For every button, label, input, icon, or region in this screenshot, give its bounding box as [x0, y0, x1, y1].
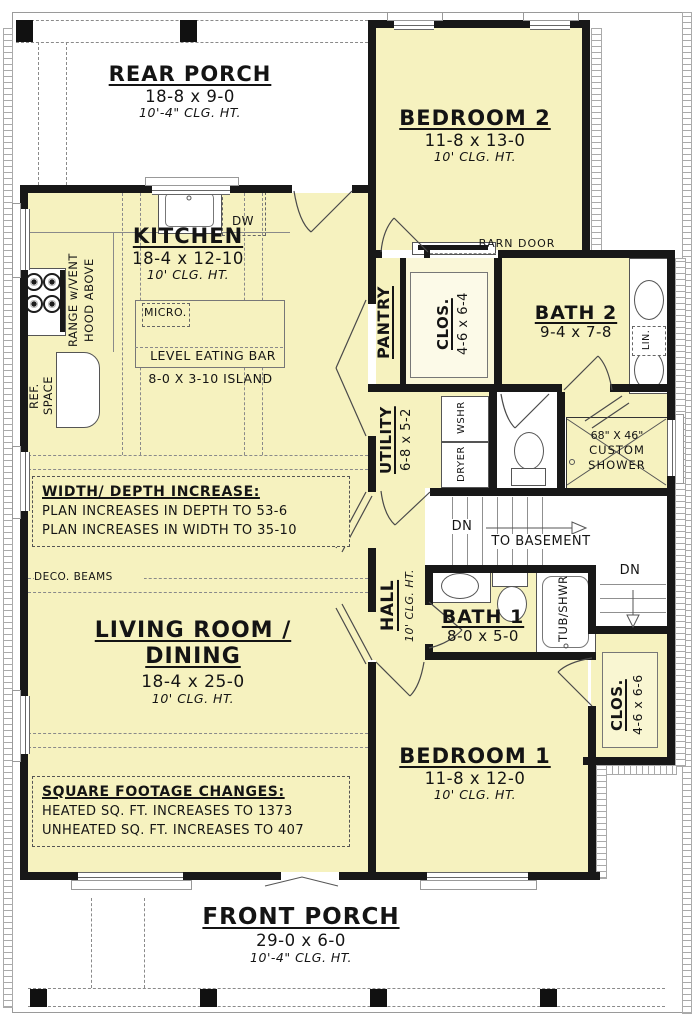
room-dims: 18-4 x 25-0	[70, 672, 316, 692]
room-name: BATH 1	[428, 606, 538, 628]
tub-shower-label: TUB/SHWR	[556, 582, 574, 642]
sink-faucet	[187, 196, 191, 200]
room-ceiling: 10' CLG. HT.	[372, 150, 578, 165]
room-name: REAR PORCH	[40, 62, 340, 87]
washer-label: WSHR	[456, 399, 472, 437]
bath2-label: BATH 2 9-4 x 7-8	[503, 302, 649, 342]
door-leaf	[558, 672, 592, 706]
closet-bottom-name: CLOS.	[608, 662, 630, 748]
microwave-label: MICRO.	[144, 306, 186, 319]
room-dims: 18-4 x 12-10	[85, 249, 291, 268]
closet-bottom-dims: 4-6 x 6-6	[630, 660, 649, 750]
room-ceiling: 10' CLG. HT.	[70, 692, 316, 707]
range-label: HOOD ABOVE	[82, 244, 97, 356]
stair-arrow-head	[572, 522, 586, 534]
stairs-dn2-label: DN	[612, 563, 648, 578]
door-arc	[558, 658, 592, 672]
ref-space-label: SPACE	[41, 364, 55, 428]
dryer-label: DRYER	[456, 445, 472, 483]
door-leaf	[564, 356, 598, 390]
note-line: UNHEATED SQ. FT. INCREASES TO 407	[42, 823, 340, 838]
room-ceiling: 10'-4" CLG. HT.	[165, 951, 437, 966]
note-line: PLAN INCREASES IN WIDTH TO 35-10	[42, 523, 340, 538]
stairs-dn-label: DN	[448, 519, 476, 534]
room-ceiling: 10' CLG. HT.	[85, 268, 291, 283]
stair-arrow-head	[627, 615, 639, 627]
shower-word: SHOWER	[570, 458, 664, 473]
note-line: HEATED SQ. FT. INCREASES TO 1373	[42, 804, 340, 819]
hall-ceiling: 10' CLG. HT.	[403, 558, 421, 652]
front-porch-label: FRONT PORCH 29-0 x 6-0 10'-4" CLG. HT.	[165, 904, 437, 965]
custom-shower-label: 68" X 46" CUSTOM SHOWER	[570, 429, 664, 473]
shower-size: 68" X 46"	[570, 429, 664, 443]
door-leaf	[394, 218, 428, 252]
room-dims: 9-4 x 7-8	[503, 324, 649, 342]
dishwasher-label: DW	[224, 214, 262, 228]
bedroom1-label: BEDROOM 1 11-8 x 12-0 10' CLG. HT.	[364, 744, 586, 803]
utility-dims: 6-8 x 5-2	[399, 394, 419, 486]
deco-beams-label: DECO. BEAMS	[34, 571, 144, 583]
front-door-mark	[265, 877, 338, 886]
door-arc	[598, 356, 612, 390]
room-dims: 18-8 x 9-0	[40, 87, 340, 106]
width-depth-note: WIDTH/ DEPTH INCREASE: PLAN INCREASES IN…	[32, 476, 350, 547]
room-dims: 29-0 x 6-0	[165, 931, 437, 950]
note-title: SQUARE FOOTAGE CHANGES:	[42, 784, 340, 800]
room-name: BEDROOM 1	[364, 744, 586, 769]
note-line: PLAN INCREASES IN DEPTH TO 53-6	[42, 504, 340, 519]
tub-faucet	[564, 644, 568, 648]
room-name: BEDROOM 2	[372, 106, 578, 131]
closet-top-dims: 4-6 x 6-4	[456, 268, 476, 380]
floor-plan: REAR PORCH 18-8 x 9-0 10'-4" CLG. HT. BE…	[0, 0, 693, 1024]
door-arc	[501, 394, 515, 428]
eating-bar-label: LEVEL EATING BAR	[148, 348, 278, 363]
utility-name: UTILITY	[377, 394, 399, 486]
to-basement-label: TO BASEMENT	[486, 534, 596, 549]
room-name: LIVING ROOM /	[70, 618, 316, 644]
room-ceiling: 10'-4" CLG. HT.	[40, 106, 340, 121]
rear-porch-label: REAR PORCH 18-8 x 9-0 10'-4" CLG. HT.	[40, 62, 340, 121]
cased-opening	[342, 604, 372, 660]
door-leaf	[311, 191, 352, 232]
kitchen-label: KITCHEN 18-4 x 12-10 10' CLG. HT.	[85, 224, 291, 283]
door-arc	[381, 491, 395, 525]
room-dims: 8-0 x 5-0	[428, 628, 538, 646]
bath1-label: BATH 1 8-0 x 5-0	[428, 606, 538, 646]
door-arc	[381, 218, 394, 252]
pantry-label: PANTRY	[374, 262, 400, 384]
bedroom2-label: BEDROOM 2 11-8 x 13-0 10' CLG. HT.	[372, 106, 578, 165]
room-dims: 11-8 x 12-0	[364, 769, 586, 788]
shower-word: CUSTOM	[570, 443, 664, 458]
room-dims: 11-8 x 13-0	[372, 131, 578, 150]
pantry-bifold	[336, 300, 366, 368]
range-label: RANGE w/VENT	[66, 244, 81, 356]
square-footage-note: SQUARE FOOTAGE CHANGES: HEATED SQ. FT. I…	[32, 776, 350, 847]
linen-label: LIN.	[641, 328, 655, 352]
room-name: DINING	[70, 644, 316, 670]
door-arc	[410, 662, 424, 696]
pantry-bifold	[336, 368, 366, 436]
living-label: LIVING ROOM / DINING 18-4 x 25-0 10' CLG…	[70, 618, 316, 707]
island-dims-label: 8-0 X 3-10 ISLAND	[138, 371, 283, 386]
shower-entry	[592, 403, 629, 428]
note-title: WIDTH/ DEPTH INCREASE:	[42, 484, 340, 500]
cased-opening	[336, 608, 366, 664]
door-leaf	[395, 492, 430, 525]
shower-entry	[585, 396, 622, 421]
room-ceiling: 10' CLG. HT.	[364, 788, 586, 803]
room-name: FRONT PORCH	[165, 904, 437, 931]
door-arc	[294, 191, 311, 232]
ref-space-label: REF.	[27, 364, 41, 428]
barn-door-label: BARN DOOR	[470, 237, 564, 250]
door-leaf	[515, 394, 549, 428]
room-name: BATH 2	[503, 302, 649, 324]
door-leaf	[376, 662, 410, 696]
closet-top-name: CLOS.	[434, 268, 456, 380]
hall-name: HALL	[378, 562, 402, 648]
